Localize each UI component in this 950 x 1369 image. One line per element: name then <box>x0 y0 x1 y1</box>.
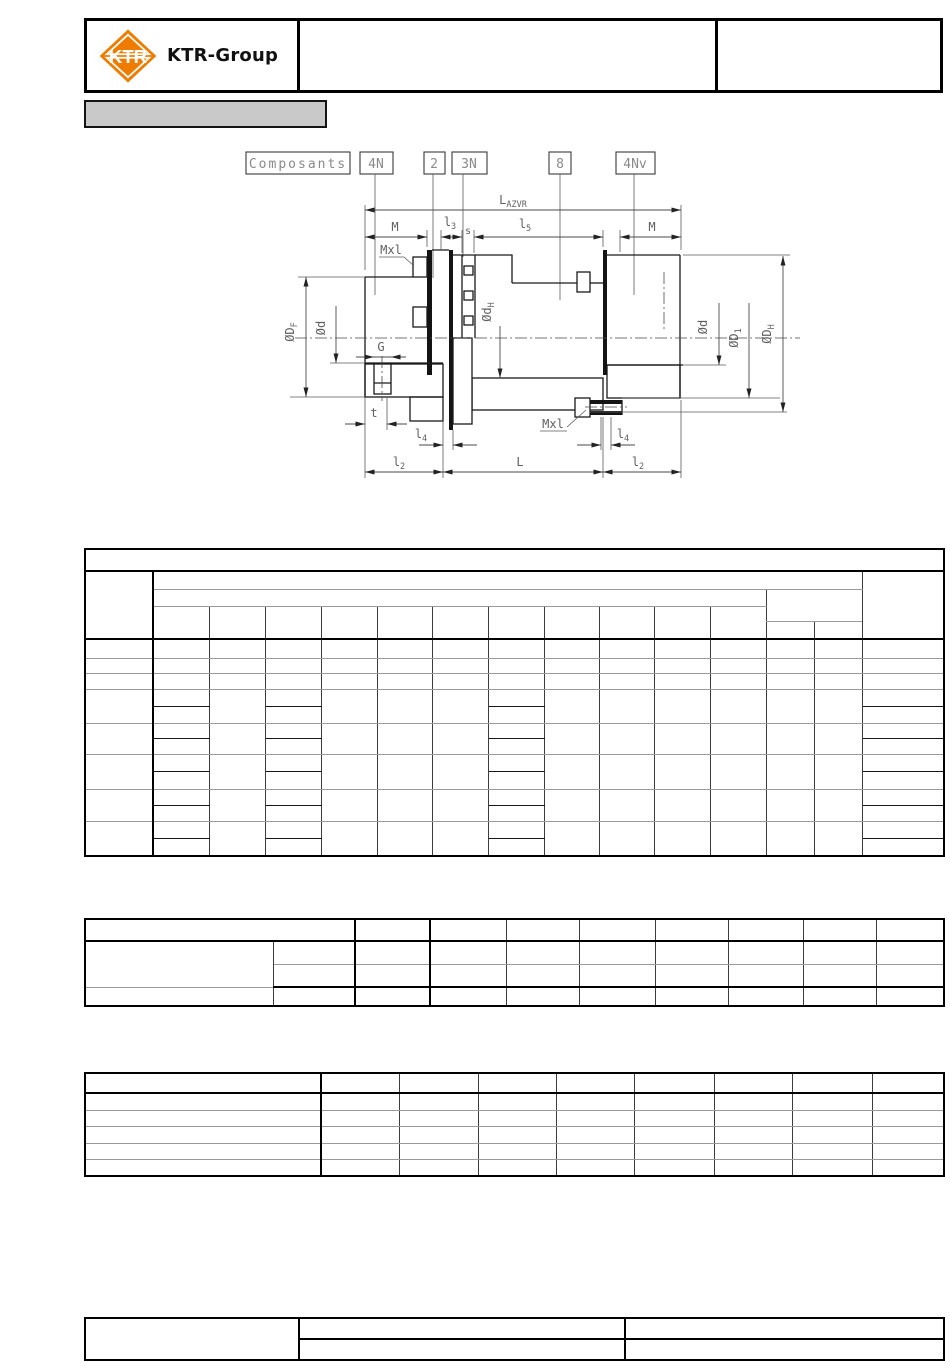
table-cell <box>432 754 488 789</box>
table-cell <box>803 987 876 1006</box>
bore-sleeve-tube <box>453 338 472 424</box>
dim-dh-bore: ØdH <box>480 302 497 322</box>
table-row <box>85 754 944 771</box>
table-cell <box>321 821 377 856</box>
table-cell <box>579 964 655 987</box>
table-cell <box>85 789 153 821</box>
table-cell <box>710 754 766 789</box>
table-cell <box>85 1073 321 1093</box>
table-cell <box>153 821 209 838</box>
table-cell <box>634 1093 714 1110</box>
table-cell <box>85 639 153 658</box>
jaw-tooth-3 <box>464 316 473 325</box>
table-cell <box>872 1073 944 1093</box>
table-cell <box>377 606 432 639</box>
table-cell <box>153 689 209 706</box>
drawing-line: 1 <box>734 328 744 333</box>
table-cell <box>321 639 377 658</box>
table-cell <box>634 1159 714 1176</box>
table-cell <box>432 673 488 689</box>
part-2-label: 2 <box>430 157 438 172</box>
table-cell <box>321 723 377 754</box>
table-cell <box>299 1318 625 1339</box>
table-cell <box>488 738 544 754</box>
table-row <box>85 1110 944 1126</box>
table-cell <box>876 964 944 987</box>
table-cell <box>488 639 544 658</box>
table-row <box>85 1093 944 1110</box>
table-cell <box>432 789 488 821</box>
table-cell <box>862 639 944 658</box>
drawing-line: Ød <box>480 307 494 321</box>
table-cell <box>153 738 209 754</box>
dim-d-f: ØDF <box>283 322 300 342</box>
table-cell <box>710 689 766 723</box>
table-cell <box>506 919 579 941</box>
table-cell <box>599 606 654 639</box>
table-cell <box>488 658 544 673</box>
table-cell <box>85 673 153 689</box>
table-cell <box>792 1110 872 1126</box>
table-cell <box>862 789 944 805</box>
table-cell <box>85 1126 321 1143</box>
table-row <box>85 987 944 1006</box>
table-cell <box>153 754 209 771</box>
drawing-line: l <box>444 215 451 229</box>
brand-name: KTR-Group <box>167 45 278 66</box>
table-cell <box>654 821 710 856</box>
table-cell <box>654 689 710 723</box>
table-cell <box>728 941 803 964</box>
table-cell <box>654 754 710 789</box>
table-cell <box>599 821 654 856</box>
table-cell <box>766 754 814 789</box>
table-cell <box>85 1143 321 1159</box>
table-cell <box>430 919 506 941</box>
table-cell <box>432 689 488 723</box>
table-cell <box>153 673 209 689</box>
drawing-line: l <box>519 217 526 231</box>
part-8-label: 8 <box>556 157 564 172</box>
table-cell <box>710 606 766 639</box>
table-cell <box>355 941 430 964</box>
table-cell <box>265 606 321 639</box>
table-cell <box>377 789 432 821</box>
table-cell <box>556 1126 634 1143</box>
table-cell <box>872 1110 944 1126</box>
table-cell <box>321 789 377 821</box>
table-cell <box>872 1093 944 1110</box>
table-cell <box>714 1159 792 1176</box>
table-cell <box>399 1073 478 1093</box>
table-cell <box>85 821 153 856</box>
table-cell <box>544 689 599 723</box>
table-cell <box>710 673 766 689</box>
table-row <box>85 1143 944 1159</box>
table-cell <box>488 606 544 639</box>
part-3n-label: 3N <box>461 157 477 172</box>
table-cell <box>556 1159 634 1176</box>
table-cell <box>862 689 944 706</box>
table-cell <box>728 987 803 1006</box>
table-cell <box>209 723 265 754</box>
table-cell <box>766 658 814 673</box>
table-cell <box>710 789 766 821</box>
footer-table <box>84 1317 945 1361</box>
table-cell <box>872 1126 944 1143</box>
table-cell <box>710 639 766 658</box>
table-cell <box>432 658 488 673</box>
table-cell <box>654 658 710 673</box>
table-cell <box>814 621 862 639</box>
part-4n-label: 4N <box>368 157 384 172</box>
table-cell <box>273 964 355 987</box>
table-cell <box>862 673 944 689</box>
table-cell <box>654 673 710 689</box>
table-cell <box>265 723 321 738</box>
ktr-logo: KTR <box>97 27 159 85</box>
table-row <box>85 589 944 606</box>
table-cell <box>766 789 814 821</box>
dim-d-right: Ød <box>696 320 710 334</box>
table-cell <box>355 964 430 987</box>
table-cell <box>377 673 432 689</box>
table-cell <box>792 1159 872 1176</box>
dim-mxl-left: Mxl <box>380 243 402 257</box>
table-cell <box>814 821 862 856</box>
table-cell <box>599 658 654 673</box>
table-cell <box>506 987 579 1006</box>
section-hatching <box>365 364 680 421</box>
table-row <box>85 821 944 838</box>
performance-table <box>84 918 945 1007</box>
table-cell <box>153 571 862 589</box>
flange-disc-right <box>603 250 607 375</box>
table-row <box>85 789 944 805</box>
table-cell <box>655 987 728 1006</box>
table-cell <box>153 606 209 639</box>
table-cell <box>655 919 728 941</box>
table-cell <box>478 1126 556 1143</box>
dim-l4-left: l4 <box>415 427 427 444</box>
flange-disc-left <box>427 250 432 375</box>
table-cell <box>599 754 654 789</box>
table-cell <box>321 673 377 689</box>
drawing-line: F <box>290 322 300 327</box>
jaw-tooth-2 <box>464 291 473 300</box>
table-cell <box>377 689 432 723</box>
table-cell <box>399 1093 478 1110</box>
technical-drawing: Composants 4N 2 3N 8 4Nv <box>0 145 950 490</box>
table-cell <box>556 1143 634 1159</box>
table-cell <box>803 964 876 987</box>
table-cell <box>814 639 862 658</box>
table-cell <box>321 1143 399 1159</box>
table-cell <box>153 805 209 821</box>
table-cell <box>862 571 944 639</box>
table-cell <box>377 639 432 658</box>
table-cell <box>544 723 599 754</box>
table-cell <box>579 941 655 964</box>
table-cell <box>209 789 265 821</box>
table-cell <box>355 987 430 1006</box>
table-cell <box>399 1159 478 1176</box>
table-cell <box>862 821 944 838</box>
logo-cell: KTR KTR-Group <box>87 21 300 90</box>
table-cell <box>872 1159 944 1176</box>
table-cell <box>634 1126 714 1143</box>
table-cell <box>599 673 654 689</box>
table-cell <box>377 658 432 673</box>
table-cell <box>273 987 355 1006</box>
drawing-line: 4 <box>624 434 629 444</box>
table-cell <box>153 838 209 856</box>
table-cell <box>599 789 654 821</box>
drawing-line: 2 <box>400 462 405 472</box>
table-cell <box>478 1093 556 1110</box>
table-cell <box>321 658 377 673</box>
table-cell <box>85 754 153 789</box>
jaw-tooth-1 <box>464 266 473 275</box>
table-cell <box>728 964 803 987</box>
table-cell <box>153 639 209 658</box>
screw-head-lower <box>413 307 427 327</box>
table-cell <box>265 771 321 789</box>
drawing-line: 2 <box>639 462 644 472</box>
table-cell <box>654 606 710 639</box>
dim-m-left: M <box>391 220 398 234</box>
drawing-line: L <box>499 193 506 207</box>
table-cell <box>766 621 814 639</box>
table-cell <box>544 606 599 639</box>
table-cell <box>766 639 814 658</box>
table-cell <box>299 1339 625 1360</box>
table-cell <box>862 838 944 856</box>
table-cell <box>488 771 544 789</box>
table-cell <box>85 689 153 723</box>
table-cell <box>634 1110 714 1126</box>
table-cell <box>265 789 321 805</box>
table-cell <box>872 1143 944 1159</box>
table-cell <box>488 838 544 856</box>
table-cell <box>85 1159 321 1176</box>
table-cell <box>714 1143 792 1159</box>
table-cell <box>85 658 153 673</box>
table-cell <box>488 706 544 723</box>
dim-t: t <box>370 406 377 420</box>
table-cell <box>153 723 209 738</box>
table-cell <box>506 941 579 964</box>
table-cell <box>728 919 803 941</box>
table-cell <box>862 658 944 673</box>
dim-d-left: Ød <box>314 321 328 335</box>
drawing-line: l <box>632 455 639 469</box>
table-cell <box>714 1093 792 1110</box>
table-cell <box>430 987 506 1006</box>
table-cell <box>625 1318 944 1339</box>
table-cell <box>488 805 544 821</box>
table-cell <box>85 941 273 987</box>
dim-l-total: L <box>516 455 523 469</box>
table-cell <box>714 1073 792 1093</box>
part-outlines <box>295 250 800 430</box>
table-cell <box>265 658 321 673</box>
dimension-lines: LAZVR M l3 s l5 M Mxl Mxl ØDF Ød <box>283 193 783 472</box>
datasheet-page: KTR KTR-Group Composants 4N 2 <box>0 0 950 1369</box>
table-cell <box>862 771 944 789</box>
table-cell <box>579 987 655 1006</box>
table-cell <box>321 1159 399 1176</box>
table-cell <box>862 754 944 771</box>
table-cell <box>814 673 862 689</box>
table-cell <box>544 639 599 658</box>
table-cell <box>209 606 265 639</box>
table-cell <box>153 658 209 673</box>
table-cell <box>265 706 321 723</box>
table-cell <box>544 658 599 673</box>
title-block-middle <box>300 21 718 90</box>
table-cell <box>655 964 728 987</box>
table-cell <box>488 821 544 838</box>
table-cell <box>488 723 544 738</box>
table-cell <box>153 789 209 805</box>
table-cell <box>265 639 321 658</box>
table-cell <box>792 1143 872 1159</box>
table-row <box>85 1318 944 1339</box>
table-cell <box>377 754 432 789</box>
table-cell <box>654 639 710 658</box>
table-cell <box>265 689 321 706</box>
drawing-line: l <box>415 427 422 441</box>
table-cell <box>321 689 377 723</box>
table-cell <box>85 723 153 754</box>
table-cell <box>265 821 321 838</box>
table-row <box>85 723 944 738</box>
table-cell <box>355 919 430 941</box>
table-row <box>85 658 944 673</box>
table-cell <box>209 821 265 856</box>
table-cell <box>599 689 654 723</box>
components-label: Composants <box>249 157 347 172</box>
drawing-line: ØD <box>760 329 774 343</box>
table-cell <box>714 1110 792 1126</box>
table-cell <box>265 738 321 754</box>
table-cell <box>710 723 766 754</box>
table-cell <box>478 1159 556 1176</box>
table-cell <box>321 1073 399 1093</box>
table-row <box>85 1073 944 1093</box>
table-cell <box>876 941 944 964</box>
table-cell <box>432 606 488 639</box>
drawing-line: l <box>393 455 400 469</box>
table-cell <box>265 673 321 689</box>
table-cell <box>876 919 944 941</box>
table-cell <box>85 549 944 571</box>
dim-l5: l5 <box>519 217 531 234</box>
table-cell <box>478 1110 556 1126</box>
logo-text: KTR <box>109 46 148 67</box>
table-cell <box>556 1110 634 1126</box>
dimensions-table <box>84 548 945 857</box>
drawing-line: ØD <box>283 327 297 341</box>
annotation-bar <box>84 100 327 128</box>
title-block: KTR KTR-Group <box>84 18 943 93</box>
drawing-line: ØD <box>727 333 741 347</box>
table-cell <box>556 1093 634 1110</box>
dim-l4-right: l4 <box>617 427 629 444</box>
table-cell <box>599 639 654 658</box>
table-cell <box>814 689 862 723</box>
drawing-line: 5 <box>526 224 531 234</box>
table-cell <box>710 821 766 856</box>
table-cell <box>265 838 321 856</box>
table-cell <box>153 771 209 789</box>
threaded-hole <box>374 364 391 394</box>
set-screw-top <box>590 400 622 404</box>
drawing-line: 4 <box>422 434 427 444</box>
table-cell <box>432 723 488 754</box>
table-cell <box>488 754 544 771</box>
dim-l3: l3 <box>444 215 456 232</box>
table-cell <box>321 606 377 639</box>
table-cell <box>766 689 814 723</box>
table-cell <box>488 673 544 689</box>
dim-s: s <box>465 226 471 237</box>
table-cell <box>399 1110 478 1126</box>
table-cell <box>803 941 876 964</box>
table-cell <box>766 821 814 856</box>
table-cell <box>862 723 944 738</box>
drawing-line: H <box>767 324 777 329</box>
dim-l-azvr: LAZVR <box>499 193 528 210</box>
table-cell <box>544 754 599 789</box>
table-row <box>85 1159 944 1176</box>
table-cell <box>209 673 265 689</box>
table-cell <box>85 987 273 1006</box>
table-cell <box>803 919 876 941</box>
table-cell <box>85 571 153 639</box>
dim-dh-outer: ØDH <box>760 324 777 344</box>
table-cell <box>153 706 209 723</box>
table-cell <box>544 789 599 821</box>
table-cell <box>792 1093 872 1110</box>
table-cell <box>488 789 544 805</box>
table-cell <box>862 706 944 723</box>
dim-g: G <box>377 340 384 354</box>
table-cell <box>556 1073 634 1093</box>
table-cell <box>625 1339 944 1360</box>
table-cell <box>321 754 377 789</box>
table-cell <box>862 805 944 821</box>
weights-table <box>84 1072 945 1177</box>
table-cell <box>478 1143 556 1159</box>
table-row <box>85 639 944 658</box>
table-cell <box>634 1073 714 1093</box>
table-cell <box>710 658 766 673</box>
table-cell <box>654 789 710 821</box>
dim-m-right: M <box>648 220 655 234</box>
spacer-boss <box>577 272 590 292</box>
table-cell <box>209 754 265 789</box>
table-cell <box>714 1126 792 1143</box>
table-row <box>85 919 944 941</box>
table-cell <box>377 821 432 856</box>
table-cell <box>814 658 862 673</box>
table-cell <box>488 689 544 706</box>
table-row <box>85 571 944 589</box>
table-cell <box>153 589 766 606</box>
table-cell <box>432 639 488 658</box>
